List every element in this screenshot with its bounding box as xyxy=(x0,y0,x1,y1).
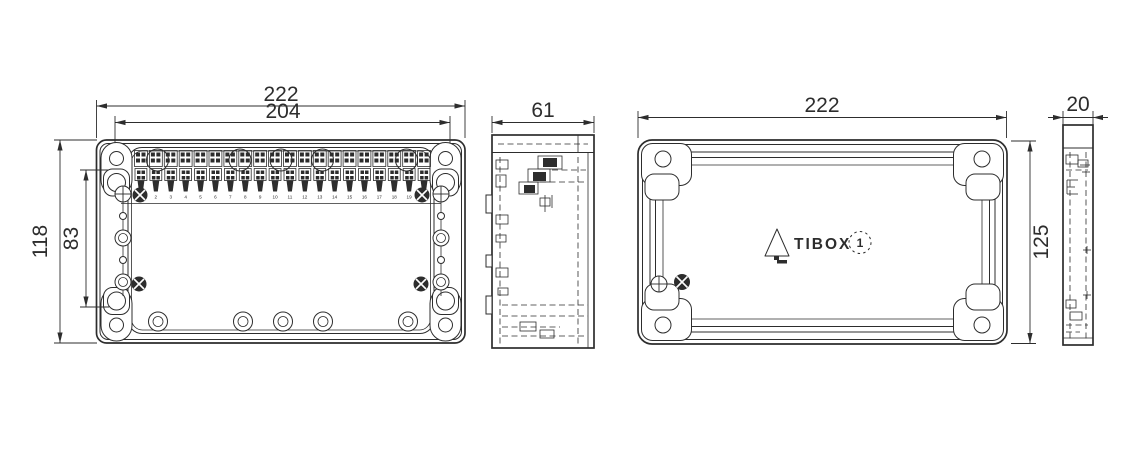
view-base-open: 1234567891011121314151617181920 xyxy=(97,140,466,343)
brand-text: TIBOX xyxy=(794,236,851,253)
terminal: 12 xyxy=(298,151,311,200)
cert-badge-icon: 1 xyxy=(849,232,871,254)
tibox-logo: TIBOX 1 xyxy=(765,229,871,264)
tree-icon xyxy=(765,229,789,264)
terminal-strip: 1234567891011121314151617181920 xyxy=(135,151,431,200)
terminal-number: 12 xyxy=(302,195,308,200)
technical-drawing: 1234567891011121314151617181920 xyxy=(0,0,1140,450)
terminal: 18 xyxy=(388,151,401,200)
cover-tab-top-right xyxy=(954,144,1004,201)
terminal-number: 5 xyxy=(199,195,202,200)
cover-tab-bottom-left xyxy=(642,284,692,341)
dim-label-cover-depth: 20 xyxy=(1066,93,1089,116)
terminal: 11 xyxy=(284,151,297,200)
terminal-number: 2 xyxy=(155,195,158,200)
terminal: 16 xyxy=(358,151,371,200)
terminal-number: 19 xyxy=(407,195,413,200)
terminal: 19 xyxy=(403,151,416,200)
terminal-number: 9 xyxy=(259,195,262,200)
terminal: 17 xyxy=(373,151,386,200)
terminal-number: 15 xyxy=(347,195,353,200)
terminal-number: 11 xyxy=(288,195,293,200)
corner-tab-bottom-right xyxy=(430,288,461,342)
dim-label-cover-height: 125 xyxy=(1030,224,1053,259)
terminal: 15 xyxy=(343,151,356,200)
view-base-side xyxy=(486,135,594,348)
screw-cross-icon xyxy=(651,276,667,292)
boss-column-left xyxy=(115,186,131,296)
terminal-number: 18 xyxy=(392,195,398,200)
cover-tab-top-left xyxy=(642,144,692,201)
cover-screw-icon xyxy=(415,188,430,203)
dim-base-depth: 61 xyxy=(492,99,594,133)
dim-label-base-inner-width: 204 xyxy=(265,100,300,123)
terminal: 6 xyxy=(209,151,222,200)
terminal-number: 6 xyxy=(214,195,217,200)
dim-cover-height: 125 xyxy=(1011,141,1053,344)
terminal: 14 xyxy=(328,151,341,200)
terminal: 9 xyxy=(254,151,267,200)
terminal: 13 xyxy=(313,151,326,200)
terminal-number: 7 xyxy=(229,195,232,200)
view-cover-side xyxy=(1063,125,1093,345)
dim-label-base-depth: 61 xyxy=(531,99,554,122)
terminal: 5 xyxy=(194,151,207,200)
terminal-number: 16 xyxy=(362,195,368,200)
dim-cover-width: 222 xyxy=(638,94,1007,138)
cover-screw-icon xyxy=(133,188,148,203)
terminal: 7 xyxy=(224,151,237,200)
cover-screw-icon xyxy=(414,277,429,292)
boss-column-right xyxy=(433,186,449,296)
terminal: 8 xyxy=(239,151,252,200)
dim-base-hole-spacing: 83 xyxy=(60,170,109,307)
bottom-boss-row xyxy=(149,312,418,331)
hidden-detail xyxy=(1067,165,1091,299)
terminal-number: 4 xyxy=(184,195,187,200)
dim-label-base-height: 118 xyxy=(29,225,52,258)
dim-cover-depth: 20 xyxy=(1048,93,1108,132)
terminal: 4 xyxy=(179,151,192,200)
terminal-number: 8 xyxy=(244,195,247,200)
corner-tab-bottom-left xyxy=(101,288,132,342)
terminal-number: 14 xyxy=(332,195,338,200)
view-cover-front: TIBOX 1 xyxy=(638,140,1007,344)
terminal: 2 xyxy=(149,151,162,200)
cover-screw-icon xyxy=(132,277,147,292)
terminal-profile xyxy=(519,156,562,212)
dim-label-base-hole-spacing: 83 xyxy=(60,227,83,250)
cover-screw-icon xyxy=(674,274,690,290)
screw-cross-icon xyxy=(115,186,131,202)
terminal-number: 17 xyxy=(377,195,383,200)
terminal-number: 10 xyxy=(273,195,279,200)
screw-cross-icon xyxy=(433,186,449,202)
cover-tab-bottom-right xyxy=(954,284,1004,341)
terminal-number: 3 xyxy=(170,195,173,200)
drawing-svg: 1234567891011121314151617181920 xyxy=(0,0,1140,450)
terminal: 3 xyxy=(164,151,177,200)
dim-label-cover-width: 222 xyxy=(804,94,839,117)
badge-number: 1 xyxy=(857,236,864,250)
terminal-number: 13 xyxy=(317,195,323,200)
